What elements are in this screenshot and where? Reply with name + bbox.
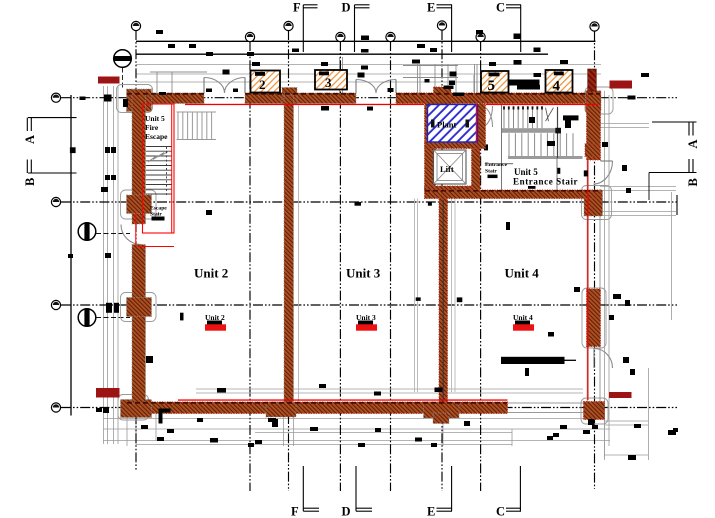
svg-text:E: E [427, 1, 435, 15]
svg-text:Unit 3: Unit 3 [346, 266, 381, 281]
svg-text:Escape: Escape [145, 132, 168, 141]
svg-text:Lift: Lift [440, 164, 454, 174]
svg-text:F: F [291, 505, 299, 518]
svg-text:B: B [686, 178, 700, 186]
svg-text:F: F [293, 1, 301, 15]
svg-text:C: C [496, 1, 505, 15]
svg-text:5: 5 [488, 78, 496, 94]
svg-text:3: 3 [325, 75, 332, 90]
svg-text:4: 4 [553, 79, 561, 95]
svg-text:Unit 5: Unit 5 [145, 114, 165, 123]
svg-text:C: C [496, 505, 505, 518]
svg-text:2: 2 [259, 77, 266, 92]
svg-text:Entrance: Entrance [485, 162, 508, 168]
svg-text:Stair: Stair [485, 169, 497, 175]
svg-text:B: B [23, 178, 37, 186]
svg-text:E: E [427, 505, 435, 518]
svg-text:D: D [342, 1, 351, 15]
svg-text:Unit 5: Unit 5 [514, 167, 538, 177]
svg-text:Unit 2: Unit 2 [194, 266, 228, 281]
svg-text:A: A [23, 135, 37, 144]
svg-text:Entrance Stair: Entrance Stair [513, 177, 578, 187]
svg-text:D: D [342, 505, 351, 518]
svg-text:Plant: Plant [437, 120, 457, 130]
svg-text:Unit 4: Unit 4 [505, 266, 540, 281]
svg-text:A: A [686, 139, 700, 148]
svg-text:Fire: Fire [145, 123, 159, 132]
